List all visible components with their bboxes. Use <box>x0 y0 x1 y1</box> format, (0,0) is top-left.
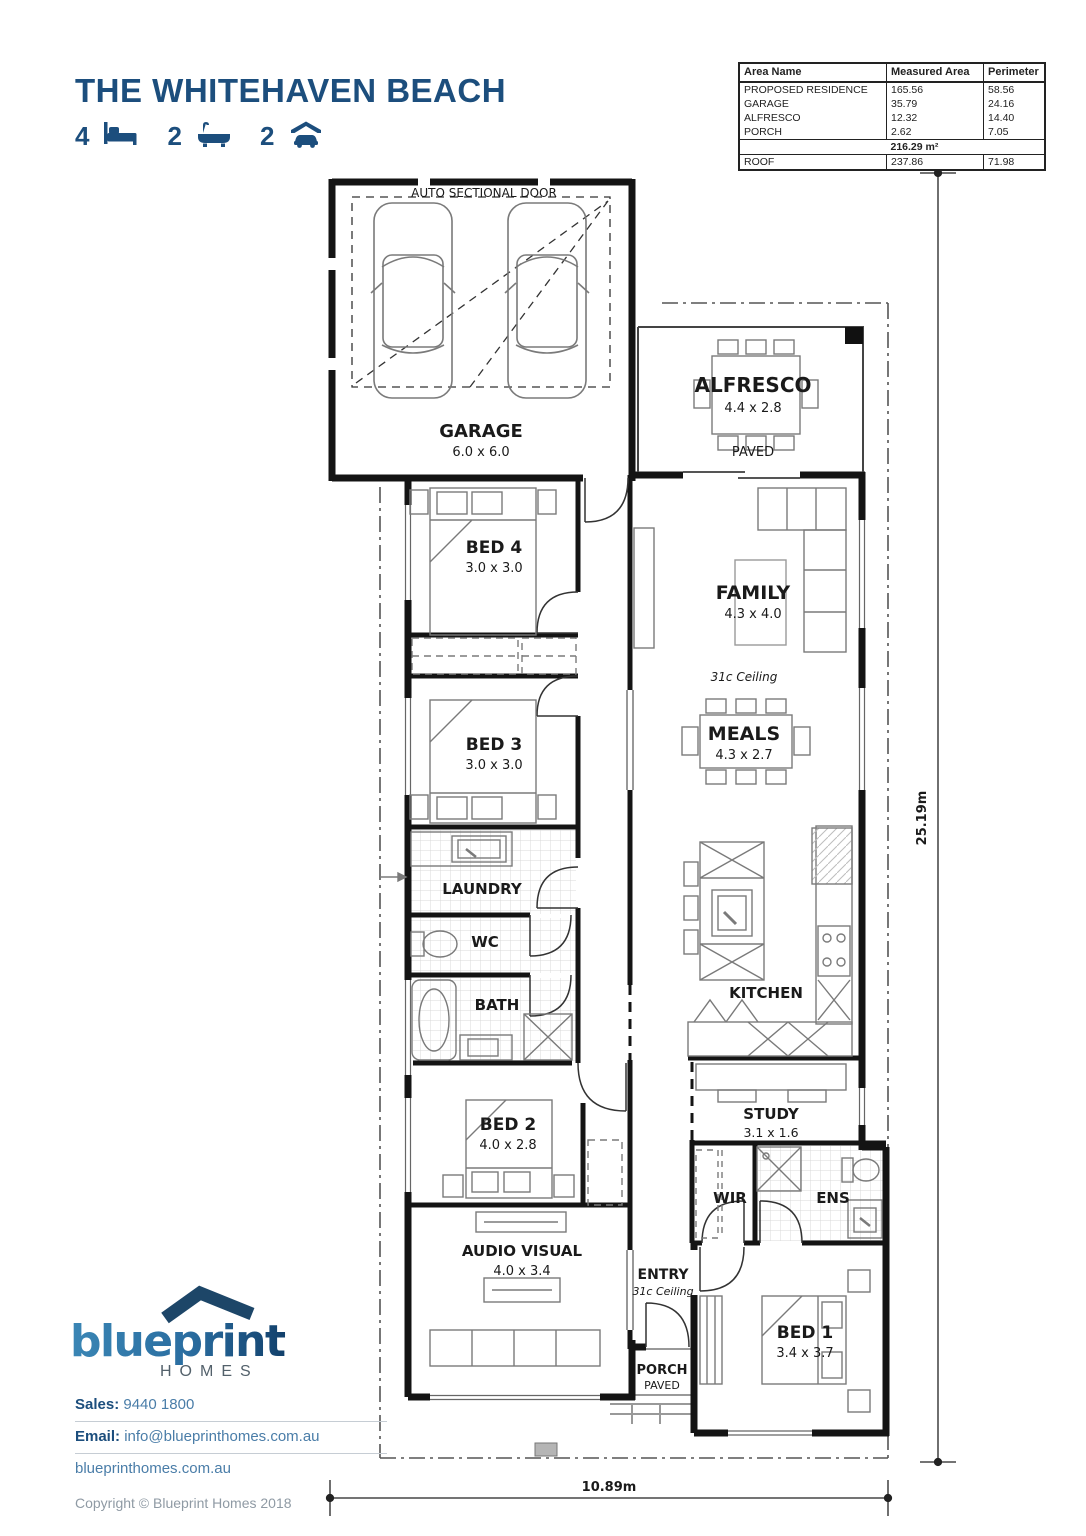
car-garage-icon <box>288 120 324 153</box>
row-name: PORCH <box>739 125 887 140</box>
logo-text: blueprint <box>70 1316 286 1367</box>
row-area: 2.62 <box>887 125 984 140</box>
row-name: GARAGE <box>739 97 887 111</box>
sales-label: Sales: <box>75 1396 119 1413</box>
room-label-audio-visual: AUDIO VISUAL <box>462 1242 583 1260</box>
row-perimeter: 14.40 <box>984 111 1046 125</box>
col-perimeter: Perimeter <box>984 63 1046 82</box>
table-row: GARAGE 35.79 24.16 <box>739 97 1045 111</box>
room-size-alfresco: 4.4 x 2.8 <box>724 401 781 416</box>
blueprint-homes-logo: blueprint HOMES <box>68 1280 308 1385</box>
row-area: 12.32 <box>887 111 984 125</box>
study-furniture <box>696 1064 846 1102</box>
room-label-meals: MEALS <box>708 723 780 745</box>
col-area-name: Area Name <box>739 63 887 82</box>
table-row: PROPOSED RESIDENCE 165.56 58.56 <box>739 82 1045 97</box>
sales-row: Sales: 9440 1800 <box>75 1390 387 1422</box>
entry-ceiling-note: 31c Ceiling <box>632 1285 693 1298</box>
room-size-bed2: 4.0 x 2.8 <box>479 1138 536 1153</box>
audio-visual-furniture <box>430 1212 600 1366</box>
row-name: ROOF <box>739 154 887 170</box>
total-area-value: 216.29 m² <box>887 139 984 154</box>
room-label-porch: PORCH <box>636 1363 687 1378</box>
bed-icon <box>103 120 139 153</box>
linen-closet <box>588 1140 622 1205</box>
room-note-alfresco: PAVED <box>732 445 774 460</box>
email-link[interactable]: info@blueprinthomes.com.au <box>124 1428 319 1445</box>
room-size-family: 4.3 x 4.0 <box>724 607 781 622</box>
bath-icon <box>196 120 232 153</box>
copyright-text: Copyright © Blueprint Homes 2018 <box>75 1485 387 1511</box>
home-stats: 4 2 2 <box>75 120 506 153</box>
exterior-walls <box>332 179 889 1436</box>
car-icon <box>371 203 589 398</box>
row-name: ALFRESCO <box>739 111 887 125</box>
row-perimeter: 24.16 <box>984 97 1046 111</box>
room-size-bed3: 3.0 x 3.0 <box>465 758 522 773</box>
contact-block: Sales: 9440 1800 Email: info@blueprintho… <box>75 1390 387 1511</box>
kitchen-furniture <box>684 826 852 1056</box>
row-perimeter: 71.98 <box>984 154 1046 170</box>
room-label-bath: BATH <box>475 996 520 1014</box>
room-size-bed1: 3.4 x 3.7 <box>776 1346 833 1361</box>
area-summary: Area Name Measured Area Perimeter PROPOS… <box>738 62 1046 171</box>
room-label-laundry: LAUNDRY <box>442 880 523 898</box>
room-label-kitchen: KITCHEN <box>729 984 803 1002</box>
room-label-bed4: BED 4 <box>466 538 523 558</box>
room-size-study: 3.1 x 1.6 <box>743 1125 798 1140</box>
bath-count: 2 <box>167 121 181 152</box>
area-table-header-row: Area Name Measured Area Perimeter <box>739 63 1045 82</box>
room-label-entry: ENTRY <box>638 1267 690 1283</box>
row-perimeter: 7.05 <box>984 125 1046 140</box>
sales-phone: 9440 1800 <box>123 1396 194 1413</box>
bed-count: 4 <box>75 121 89 152</box>
letterbox <box>535 1443 557 1456</box>
room-label-garage: GARAGE <box>439 421 523 442</box>
room-size-meals: 4.3 x 2.7 <box>715 748 772 763</box>
area-table: Area Name Measured Area Perimeter PROPOS… <box>738 62 1046 171</box>
sliding-door-alfresco <box>683 472 800 478</box>
website-row: blueprinthomes.com.au <box>75 1454 387 1485</box>
total-row: 216.29 m² <box>739 139 1045 154</box>
row-area: 35.79 <box>887 97 984 111</box>
room-label-bed1: BED 1 <box>777 1323 833 1343</box>
room-label-study: STUDY <box>743 1105 800 1123</box>
header: THE WHITEHAVEN BEACH 4 2 <box>75 72 506 153</box>
room-label-alfresco: ALFRESCO <box>694 373 811 397</box>
room-label-bed2: BED 2 <box>480 1115 536 1135</box>
dimension-height-label: 25.19m <box>915 791 930 846</box>
family-furniture <box>634 488 846 652</box>
room-size-bed4: 3.0 x 3.0 <box>465 561 522 576</box>
row-area: 237.86 <box>887 154 984 170</box>
room-label-wir: WIR <box>713 1189 747 1207</box>
row-area: 165.56 <box>887 82 984 97</box>
robes <box>412 638 576 674</box>
roof-row: ROOF 237.86 71.98 <box>739 154 1045 170</box>
row-name: PROPOSED RESIDENCE <box>739 82 887 97</box>
family-ceiling-note: 31c Ceiling <box>711 670 778 684</box>
car-count: 2 <box>260 121 274 152</box>
room-label-ens: ENS <box>816 1189 850 1207</box>
logo-subtext: HOMES <box>160 1363 259 1380</box>
table-row: ALFRESCO 12.32 14.40 <box>739 111 1045 125</box>
bulkhead-dashes <box>630 985 692 1140</box>
room-label-wc: WC <box>471 933 499 951</box>
email-row: Email: info@blueprinthomes.com.au <box>75 1422 387 1454</box>
website-link[interactable]: blueprinthomes.com.au <box>75 1460 231 1477</box>
room-note-porch: PAVED <box>644 1379 680 1392</box>
dimension-width-label: 10.89m <box>582 1480 637 1495</box>
reference-arrow <box>380 873 406 881</box>
table-row: PORCH 2.62 7.05 <box>739 125 1045 140</box>
room-label-bed3: BED 3 <box>466 735 522 755</box>
email-label: Email: <box>75 1428 120 1445</box>
alfresco-post <box>845 327 863 344</box>
room-size-audio-visual: 4.0 x 3.4 <box>493 1264 550 1279</box>
total-perimeter-spacer <box>984 139 1046 154</box>
col-measured-area: Measured Area <box>887 63 984 82</box>
garage-door-dashes <box>352 197 610 387</box>
room-label-family: FAMILY <box>716 582 791 604</box>
garage-door-label: AUTO SECTIONAL DOOR <box>411 186 557 200</box>
row-perimeter: 58.56 <box>984 82 1046 97</box>
room-size-garage: 6.0 x 6.0 <box>452 445 509 460</box>
page-title: THE WHITEHAVEN BEACH <box>75 72 506 110</box>
floorplan-brochure-page: THE WHITEHAVEN BEACH 4 2 <box>0 0 1086 1536</box>
logo-roof-icon <box>165 1293 252 1318</box>
total-spacer <box>739 139 887 154</box>
